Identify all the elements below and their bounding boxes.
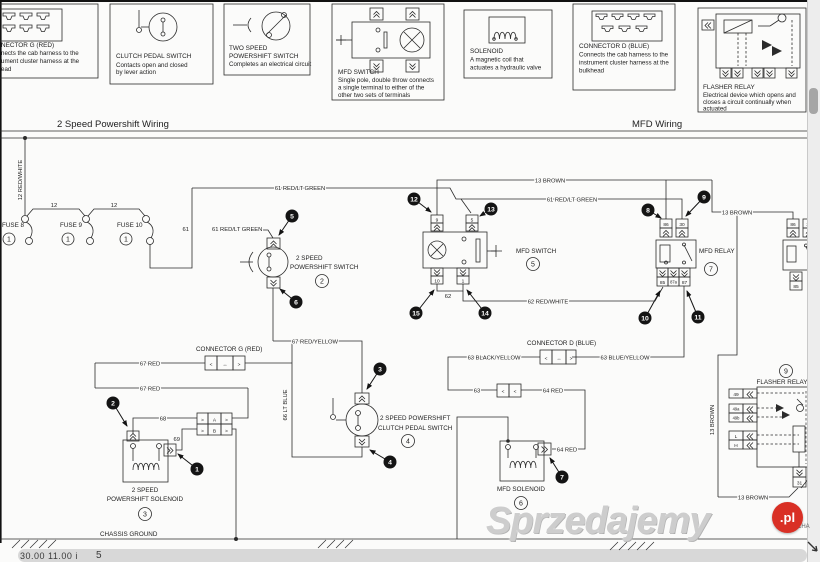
wire-label: 64 RED xyxy=(557,448,577,454)
wire-64-red xyxy=(521,390,585,449)
terminal: H xyxy=(734,443,738,449)
component-ref: 6 xyxy=(519,501,523,508)
wire-label: 13 BROWN xyxy=(738,496,768,502)
solenoid-coil-icon xyxy=(489,17,525,43)
wire-label: 61 xyxy=(183,227,189,233)
diode-icon xyxy=(776,404,784,412)
connector-symbol: < xyxy=(545,356,548,362)
fuse9-label: FUSE 9 xyxy=(60,222,83,229)
wire-label: 13 BROWN xyxy=(722,211,752,217)
legend-desc: Electrical device which opens and xyxy=(703,92,796,99)
component-label: FLASHER RELAY xyxy=(757,379,809,386)
legend-desc: nects the cab harness to the xyxy=(1,50,79,57)
fuse9-ref: 1 xyxy=(66,237,70,244)
terminal: 87 xyxy=(682,280,688,286)
connector-symbol: ↔ xyxy=(223,363,228,368)
connector-symbol: > xyxy=(238,362,241,368)
connector-symbol: > xyxy=(201,418,204,424)
connector-d-icon xyxy=(592,11,662,41)
callout: 6 xyxy=(294,300,298,307)
wire-66-lt-blue xyxy=(292,341,362,457)
legend-title: MFD SWITCH xyxy=(338,69,379,76)
wire-label: 67 RED xyxy=(140,362,160,368)
wire-label: 64 RED xyxy=(543,389,563,395)
powershift-switch: 2 SPEED POWERSHIFT SWITCH 2 xyxy=(240,238,359,341)
wire-label: 68 xyxy=(160,417,166,423)
legend-desc: other two sets of terminals xyxy=(338,92,410,99)
coil-leads xyxy=(133,448,159,461)
top-border xyxy=(0,0,807,2)
wire-label: 12 xyxy=(111,203,117,209)
connector-symbol: > xyxy=(225,418,228,424)
ground-hatch xyxy=(318,540,353,548)
terminal: 87a xyxy=(670,280,678,285)
schematic-page: NECTOR G (RED) nects the cab harness to … xyxy=(0,0,820,562)
diode-icon xyxy=(782,411,790,419)
legend-connector-g: NECTOR G (RED) nects the cab harness to … xyxy=(0,4,98,78)
wire-label: 13 BROWN xyxy=(710,405,716,435)
component-label: MFD SOLENOID xyxy=(497,486,545,493)
fuse10-label: FUSE 10 xyxy=(117,222,143,229)
wire-67-to-a xyxy=(232,388,248,418)
wire-label: 63 xyxy=(474,389,480,395)
resize-arrow-icon xyxy=(808,542,817,551)
legend-title: TWO SPEED xyxy=(229,45,268,52)
component-label: 2 SPEED POWERSHIFT xyxy=(380,415,450,422)
mfd-switch: 9 5 10 1 62 62 RED/WHITE MFD SWITCH 5 xyxy=(423,215,663,306)
terminal: 30 xyxy=(806,222,812,228)
terminal: 85 xyxy=(793,284,799,290)
legend-title: SOLENOID xyxy=(470,48,503,55)
wire-63-black-yellow xyxy=(448,357,540,390)
legend-desc: actuates a hydraulic valve xyxy=(470,65,542,72)
connector-symbol: < xyxy=(502,389,505,395)
connector-symbol: < xyxy=(514,389,517,395)
title-left: 2 Speed Powershift Wiring xyxy=(57,119,169,130)
component-label: MFD SWITCH xyxy=(516,248,557,255)
title-right: MFD Wiring xyxy=(632,119,682,130)
powershift-switch-icon xyxy=(233,12,290,40)
right-relay: 86 30 85 xyxy=(783,219,818,488)
lever-icon xyxy=(491,245,502,257)
callout: 10 xyxy=(641,316,649,323)
legend-title: CONNECTOR D (BLUE) xyxy=(579,43,649,50)
legend-desc: ead xyxy=(1,66,12,73)
mfd-switch-icon xyxy=(336,8,430,72)
terminal: L xyxy=(735,434,738,440)
wire-label: 62 xyxy=(445,294,451,300)
component-ref: 3 xyxy=(143,512,147,519)
fuse10-ref: 1 xyxy=(124,237,128,244)
terminal: 9 xyxy=(436,218,439,224)
connector-symbol: ↔ xyxy=(557,357,562,362)
callout: 5 xyxy=(290,214,294,221)
connector-terminal: A xyxy=(213,418,217,424)
legend-mfd-switch: MFD SWITCH Single pole, double throw con… xyxy=(332,4,444,100)
callout: 1 xyxy=(195,467,199,474)
connector-symbol: > xyxy=(570,356,573,362)
wire-label: 63 BLACK/YELLOW xyxy=(468,356,521,362)
terminal: 10 xyxy=(434,279,440,285)
legend-desc: bulkhead xyxy=(579,68,605,75)
terminal: 49b xyxy=(733,416,741,421)
lamp-icon xyxy=(431,244,443,256)
wire-label: 67 RED xyxy=(140,387,160,393)
legend-clutch-pedal-switch: CLUTCH PEDAL SWITCH Contacts open and cl… xyxy=(110,4,213,84)
callout: 11 xyxy=(694,315,701,322)
legend-desc: A magnetic coil that xyxy=(470,57,524,64)
connector-g-label: CONNECTOR G (RED) xyxy=(196,346,262,353)
connector-symbol: > xyxy=(225,429,228,435)
legend-desc: actuated xyxy=(703,106,727,113)
wire-label: 12 RED/WHITE xyxy=(18,160,24,201)
chassis-ground: CHASSIS GROUND xyxy=(0,531,807,550)
terminal: 49 xyxy=(733,392,739,398)
legend-desc: Contacts open and closed xyxy=(116,62,188,69)
legend-desc: a single terminal to either of the xyxy=(338,85,425,92)
legend-desc: instrument cluster harness at the xyxy=(579,60,669,67)
terminal: 86 xyxy=(663,222,669,228)
connector-g-icon xyxy=(0,9,62,41)
trunk-wires: 61 RED/LT GREEN 61 RED/LT GREEN 61 RED/L… xyxy=(192,179,793,498)
callout: 12 xyxy=(410,197,418,204)
terminal: 1 xyxy=(462,279,465,285)
coil-icon xyxy=(133,463,159,470)
coil-icon xyxy=(510,461,536,468)
legend-desc: by lever action xyxy=(116,69,156,76)
ground-label: CHASSIS GROUND xyxy=(100,531,158,538)
component-ref: 4 xyxy=(406,439,410,446)
callout: 14 xyxy=(481,311,489,318)
callout: 9 xyxy=(702,195,706,202)
wire-label: 61 RED/LT GREEN xyxy=(547,198,597,204)
clutch-switch-icon xyxy=(137,10,178,41)
wire-label: 63 BLUE/YELLOW xyxy=(601,356,651,362)
legend-desc: Single pole, double throw connects xyxy=(338,77,434,84)
flasher-relay-main: 9 FLASHER RELAY 49 49a 49b L H xyxy=(718,365,811,502)
connector-terminal: B xyxy=(213,429,216,435)
flasher-relay-icon xyxy=(702,14,800,78)
fuse8-ref: 1 xyxy=(7,237,11,244)
wire-right-relay-down xyxy=(801,261,810,488)
ground-hatch xyxy=(610,542,654,550)
wire-67-red-yellow xyxy=(273,341,362,393)
legend-desc: ument cluster harness at the xyxy=(1,58,80,65)
connector-symbol: < xyxy=(210,362,213,368)
legend-solenoid: SOLENOID A magnetic coil that actuates a… xyxy=(464,10,552,78)
clutch-pedal-switch: 2 SPEED POWERSHIFT CLUTCH PEDAL SWITCH 4 xyxy=(331,393,453,448)
component-label: 2 SPEED xyxy=(296,255,323,262)
ground-hatch xyxy=(12,540,56,548)
component-ref: 9 xyxy=(784,369,788,376)
terminal: 49a xyxy=(733,407,741,412)
callout: 15 xyxy=(412,311,420,318)
component-label: POWERSHIFT SWITCH xyxy=(290,264,359,271)
fuse8-label: FUSE 8 xyxy=(2,222,25,229)
legend-desc: Connects the cab harness to the xyxy=(579,52,669,59)
wire-label: 69 xyxy=(174,437,180,443)
mfd-relay: 86 30 85 87a 87 MFD RELAY 7 xyxy=(656,219,735,286)
component-ref: 2 xyxy=(320,279,324,286)
connector-symbol: > xyxy=(201,429,204,435)
legend-title: FLASHER RELAY xyxy=(703,84,755,91)
wire-b-ground xyxy=(232,429,236,539)
terminal: 85 xyxy=(660,280,666,286)
wire-label: 61 RED/LT GREEN xyxy=(212,227,262,233)
component-label: 2 SPEED xyxy=(132,487,159,494)
component-label: CLUTCH PEDAL SWITCH xyxy=(378,425,453,432)
terminal: 5 xyxy=(471,218,474,224)
wire-label: 61 RED/LT GREEN xyxy=(275,186,325,192)
edge-cut-text: CHA xyxy=(797,524,810,530)
wire-62-jumper xyxy=(437,284,463,291)
legend-two-speed-powershift-switch: TWO SPEED POWERSHIFT SWITCH Completes an… xyxy=(224,4,311,75)
callout: 4 xyxy=(388,460,392,467)
component-ref: 5 xyxy=(531,262,535,269)
callout: 3 xyxy=(378,367,382,374)
legend-desc: Completes an electrical circuit xyxy=(229,61,311,68)
footer-text: 30.00 11.00 i xyxy=(20,551,78,561)
wire-label: 67 RED/YELLOW xyxy=(292,340,339,346)
legend-connector-d: CONNECTOR D (BLUE) Connects the cab harn… xyxy=(573,4,675,90)
terminal: 86 xyxy=(790,222,796,228)
wire-label: 13 BROWN xyxy=(535,179,565,185)
terminal: 30 xyxy=(679,222,685,228)
callout: 8 xyxy=(646,208,650,215)
legend-title: CLUTCH PEDAL SWITCH xyxy=(116,53,192,60)
legend-flasher-relay: FLASHER RELAY Electrical device which op… xyxy=(698,8,806,113)
component-label: POWERSHIFT SOLENOID xyxy=(107,496,184,503)
wire-label: 66 LT BLUE xyxy=(283,389,289,420)
component-label: MFD RELAY xyxy=(699,248,735,255)
wiring-diagram-svg: NECTOR G (RED) nects the cab harness to … xyxy=(0,0,820,562)
terminal: 31 xyxy=(797,481,803,487)
callout: 13 xyxy=(487,207,495,214)
component-ref: 7 xyxy=(709,267,713,274)
powershift-solenoid-circuit: < ↔ > CONNECTOR G (RED) 67 RED 67 RED 67… xyxy=(95,340,362,542)
wire-61-branch xyxy=(461,199,471,213)
footer-page-number: 5 xyxy=(96,550,102,561)
mfd-solenoid-circuit: < ↔ > CONNECTOR D (BLUE) < < 63 BLACK/YE… xyxy=(448,286,684,539)
callout: 7 xyxy=(560,475,564,482)
legend-title: POWERSHIFT SWITCH xyxy=(229,53,299,60)
wire-label: 62 RED/WHITE xyxy=(528,300,569,306)
callout: 2 xyxy=(111,401,115,408)
wire-label: 12 xyxy=(51,203,57,209)
legend-title: NECTOR G (RED) xyxy=(1,42,54,49)
connector-d-label: CONNECTOR D (BLUE) xyxy=(527,340,596,347)
left-border xyxy=(0,0,2,543)
